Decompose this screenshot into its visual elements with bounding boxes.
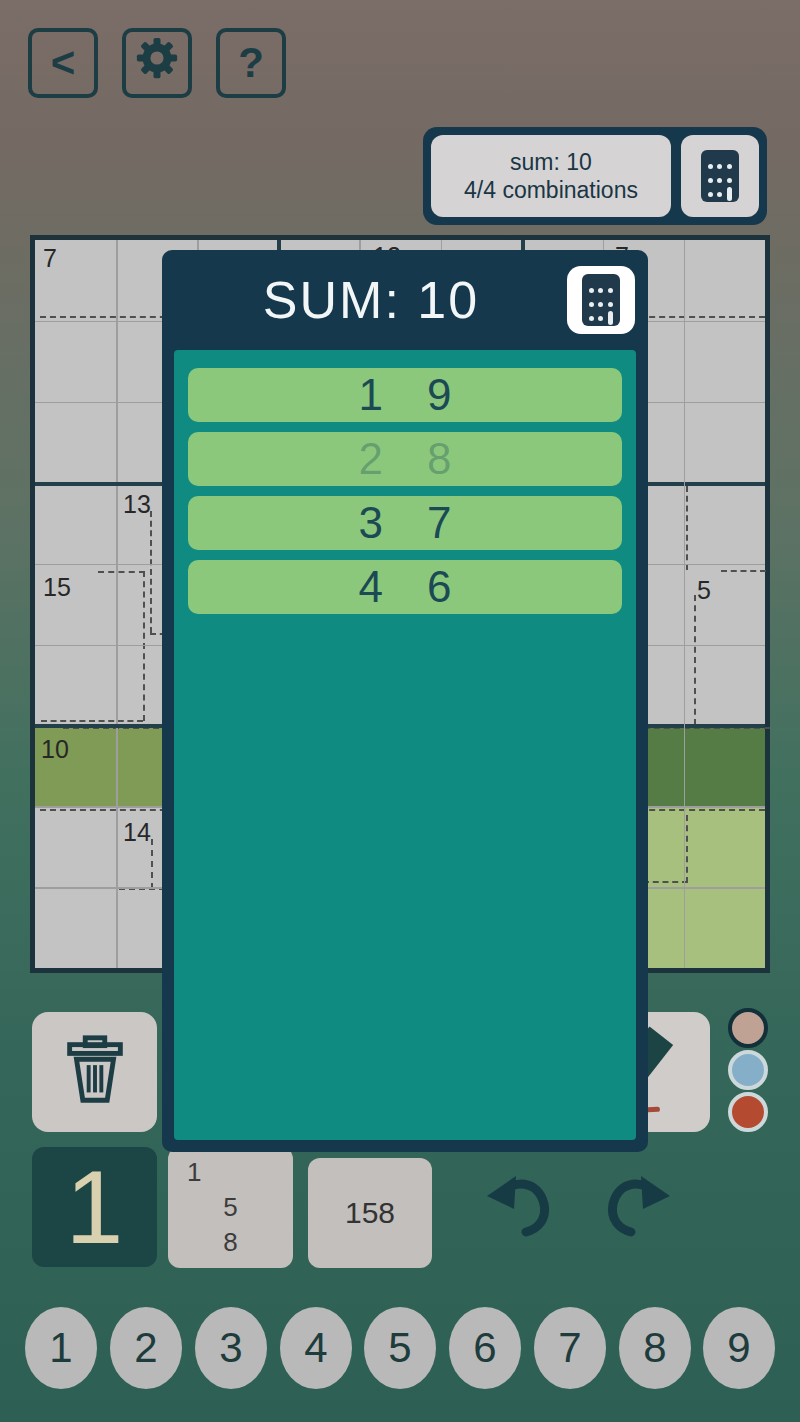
grid-line (116, 240, 118, 968)
settings-button[interactable] (122, 28, 192, 98)
game-screen: < ? sum: 10 4/4 co (0, 0, 800, 1422)
calculator-icon (582, 274, 620, 326)
pencil-mark: 1 (176, 1155, 212, 1190)
gear-icon (136, 37, 178, 89)
number-button-1[interactable]: 1 (25, 1307, 97, 1389)
selected-number-label: 1 (66, 1148, 124, 1267)
cage-sum-label: 14 (123, 818, 151, 847)
undo-arrow-icon (485, 1232, 557, 1249)
cage-sum-label: 5 (697, 576, 711, 605)
cage-sum-label: 7 (43, 244, 57, 273)
number-button-7[interactable]: 7 (534, 1307, 606, 1389)
sum-combinations-modal: SUM: 10 1 9 2 8 3 7 4 6 (162, 250, 648, 1152)
cell-value-label: 158 (345, 1196, 395, 1230)
cage-sum-label: 10 (41, 735, 69, 764)
cage-border (643, 881, 688, 883)
combinations-line: 4/4 combinations (464, 176, 638, 204)
combo-row-2[interactable]: 3 7 (188, 496, 622, 550)
number-label: 3 (219, 1324, 242, 1372)
cell-value-card[interactable]: 158 (308, 1158, 432, 1268)
color-dot-beige[interactable] (728, 1008, 768, 1048)
cage-border (721, 570, 766, 572)
cage-sum-label: 15 (43, 573, 71, 602)
selected-number-key[interactable]: 1 (32, 1147, 157, 1267)
question-mark-icon: ? (238, 39, 264, 87)
number-button-9[interactable]: 9 (703, 1307, 775, 1389)
calculator-icon (701, 150, 739, 202)
modal-calculator-button[interactable] (567, 266, 635, 334)
sum-info-panel: sum: 10 4/4 combinations (423, 127, 767, 225)
number-label: 5 (388, 1324, 411, 1372)
sum-info-text: sum: 10 4/4 combinations (431, 135, 671, 217)
pencil-mark: 8 (212, 1225, 248, 1260)
cage-border (150, 511, 152, 633)
cage-border (694, 595, 696, 725)
back-button[interactable]: < (28, 28, 98, 98)
number-button-3[interactable]: 3 (195, 1307, 267, 1389)
number-label: 8 (643, 1324, 666, 1372)
sum-line: sum: 10 (510, 148, 592, 176)
combo-row-0[interactable]: 1 9 (188, 368, 622, 422)
number-button-6[interactable]: 6 (449, 1307, 521, 1389)
number-label: 2 (134, 1324, 157, 1372)
pencil-mark: 5 (212, 1190, 248, 1225)
cage-border (686, 815, 688, 883)
modal-header: SUM: 10 (162, 250, 648, 350)
number-button-5[interactable]: 5 (364, 1307, 436, 1389)
erase-button[interactable] (32, 1012, 157, 1132)
number-label: 1 (49, 1324, 72, 1372)
trash-can-icon (56, 1031, 134, 1113)
back-chevron-icon: < (51, 39, 76, 87)
cage-border (41, 720, 143, 722)
combo-row-3[interactable]: 4 6 (188, 560, 622, 614)
grid-line (684, 240, 686, 968)
number-label: 7 (558, 1324, 581, 1372)
redo-arrow-icon (600, 1232, 672, 1249)
cage-border (686, 486, 688, 570)
color-dot-blue[interactable] (728, 1050, 768, 1090)
number-button-8[interactable]: 8 (619, 1307, 691, 1389)
undo-button[interactable] (485, 1170, 557, 1250)
cage-sum-label: 13 (123, 490, 151, 519)
number-button-4[interactable]: 4 (280, 1307, 352, 1389)
cage-border (151, 839, 153, 889)
number-button-2[interactable]: 2 (110, 1307, 182, 1389)
cage-border (143, 571, 145, 721)
color-dot-red[interactable] (728, 1092, 768, 1132)
modal-body: 1 9 2 8 3 7 4 6 (174, 350, 636, 1140)
combo-row-1[interactable]: 2 8 (188, 432, 622, 486)
combinations-calculator-button[interactable] (681, 135, 759, 217)
number-label: 6 (473, 1324, 496, 1372)
number-label: 4 (304, 1324, 327, 1372)
redo-button[interactable] (600, 1170, 672, 1250)
help-button[interactable]: ? (216, 28, 286, 98)
pencil-marks-card[interactable]: 1 5 8 (168, 1147, 293, 1268)
modal-title: SUM: 10 (175, 270, 567, 330)
number-label: 9 (727, 1324, 750, 1372)
cage-border (98, 571, 145, 573)
